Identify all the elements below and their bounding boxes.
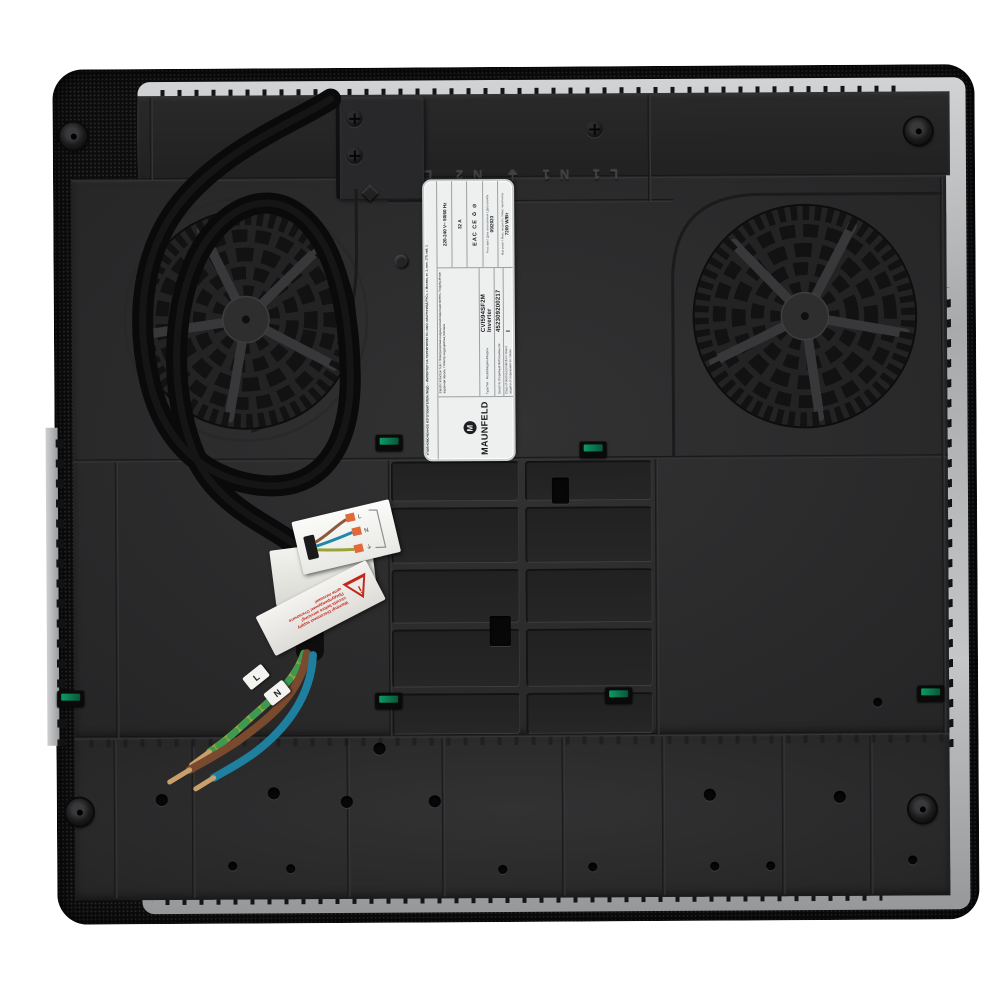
prod-date-value: 09/2023 <box>489 216 494 233</box>
panel-cell <box>524 460 652 501</box>
power-row: Max power / Макс. мощность / Макс. магут… <box>498 181 513 267</box>
vent-hole <box>873 698 882 707</box>
rect-slot <box>490 616 511 646</box>
panel-cell <box>525 628 653 687</box>
vent-hole <box>373 743 385 755</box>
diagram-wire-brown <box>312 519 350 542</box>
vent-hole <box>908 855 917 864</box>
wiring-diagram: L N ⏚ <box>291 499 401 575</box>
product-name: Electric Induction hob / Электрическая и… <box>438 268 481 396</box>
current-value: 32 A <box>452 181 468 267</box>
wire-copper-tip <box>196 778 214 789</box>
terminal-letter-l: L <box>357 514 362 521</box>
terminal-icon <box>345 513 356 523</box>
vent-hole <box>766 861 775 870</box>
rect-slot <box>552 478 569 504</box>
vent-hole <box>228 862 237 871</box>
pcb-clip <box>917 685 944 701</box>
terminal-letter-n: N <box>364 528 370 535</box>
rating-label: УПОЛНОМОЧЕННОЕ ИЗГОТОВИТЕЛЕМ ЛИЦО – ИМПО… <box>422 179 516 462</box>
maunfeld-logo-icon: M <box>463 422 476 435</box>
vent-hole <box>704 789 716 801</box>
power-value: 7200 W/Вт <box>504 213 509 236</box>
terminal-icon <box>351 526 362 536</box>
pcb-clip <box>376 435 403 451</box>
serial-value: 452309200217 <box>495 268 503 334</box>
type-label: Type/Тип · Model/Модель/Мадэль <box>485 334 491 396</box>
label-ratings-block: 220-240 V~ 50/60 Hz 32 A EAC CE ♻ ⊘ Prod… <box>437 181 513 267</box>
certification-marks: EAC CE ♻ ⊘ <box>467 181 483 267</box>
panel-cell <box>526 692 654 734</box>
vent-hole <box>710 862 719 871</box>
prod-date-row: Prod. date / Дата изготовления / Дата вы… <box>483 181 499 267</box>
panel-cell <box>392 693 520 735</box>
wire-copper-tip <box>170 770 190 782</box>
brand-block: M MAUNFELD <box>438 396 513 459</box>
alert-triangle-icon <box>342 573 375 604</box>
serial-label: Serial No./Серийный №/Серыйны № <box>497 334 503 396</box>
rubber-foot <box>66 798 93 825</box>
panel-cell <box>391 461 519 502</box>
vent-hole <box>156 794 168 806</box>
vent-hole <box>429 795 441 807</box>
right-fan-grille <box>693 204 917 428</box>
vent-hole <box>268 787 280 799</box>
panel-cell <box>525 506 653 563</box>
type-value: CVI594SF2M Inverter <box>480 268 494 334</box>
terminal-letter-pe: ⏚ <box>366 543 373 551</box>
product-photo: L1 N1 ⏚ N2 L2 <box>0 0 1000 1000</box>
label-row-class: Class of electrical protection / Класс з… <box>504 268 513 396</box>
diagram-bracket <box>367 508 386 549</box>
brand-name: MAUNFELD <box>479 401 489 455</box>
rubber-foot <box>909 795 936 822</box>
pcb-clip <box>57 691 84 707</box>
rubber-foot <box>60 123 87 150</box>
class-label: Class of electrical protection / Класс з… <box>504 334 513 396</box>
label-row-type: Type/Тип · Model/Модель/Мадэль CVI594SF2… <box>480 268 496 396</box>
rating-label-area: УПОЛНОМОЧЕННОЕ ИЗГОТОВИТЕЛЕМ ЛИЦО – ИМПО… <box>422 183 514 464</box>
vent-hole <box>834 791 846 803</box>
voltage-value: 220-240 V~ 50/60 Hz <box>437 181 453 267</box>
label-spec-block: Electric Induction hob / Электрическая и… <box>438 267 514 396</box>
panel-cell <box>391 507 519 564</box>
terminal-icon <box>353 543 364 553</box>
hob-underside: L1 N1 ⏚ N2 L2 <box>0 0 1000 1000</box>
vent-hole <box>286 864 295 873</box>
vent-hole <box>588 862 597 871</box>
sticker-diagram-face: L N ⏚ <box>291 499 401 575</box>
vent-hole <box>498 865 507 874</box>
class-value: I <box>504 268 512 334</box>
vent-hole <box>341 796 353 808</box>
pcb-clip <box>580 441 607 457</box>
panel-cell <box>525 568 653 623</box>
pcb-clip <box>375 693 402 709</box>
pcb-clip <box>605 687 632 703</box>
cable-clamp-icon <box>303 534 319 560</box>
rubber-foot <box>905 117 932 144</box>
